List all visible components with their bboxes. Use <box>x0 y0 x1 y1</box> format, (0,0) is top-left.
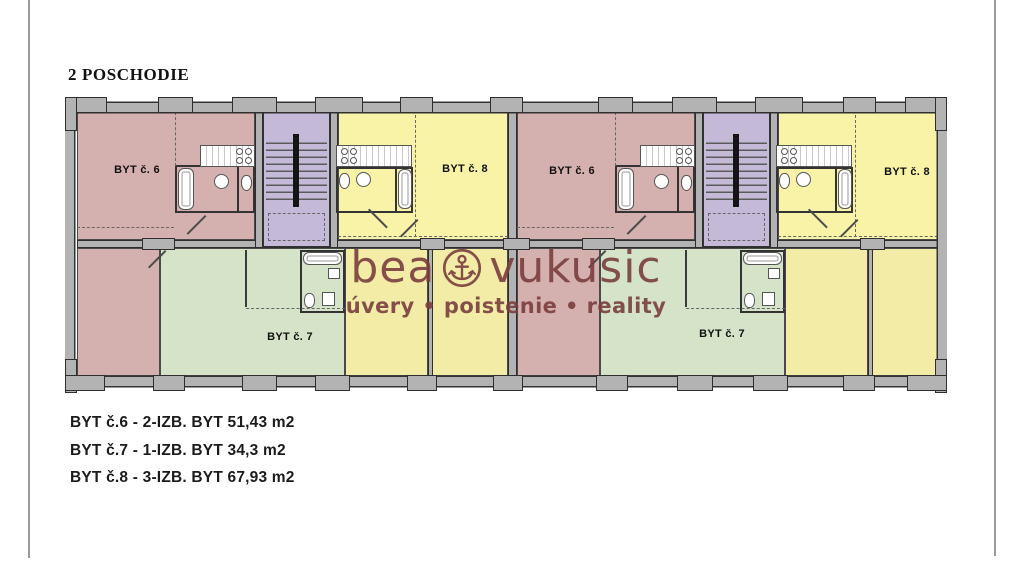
room-byt8-bedroom <box>785 248 868 376</box>
room-byt8-bedroom <box>345 248 428 376</box>
bathtub-icon <box>618 168 634 210</box>
bathtub-icon <box>398 169 412 209</box>
toilet-icon <box>339 173 350 189</box>
wall-pillar <box>755 97 803 113</box>
stove-burner-icon <box>781 157 788 164</box>
interior-wall <box>685 250 687 307</box>
sink-icon <box>356 172 371 187</box>
floor-plan: BYT č. 6BYT č. 6BYT č. 8BYT č. 8BYT č. 7… <box>65 97 947 393</box>
wall-pillar <box>843 97 876 113</box>
wall-pillar <box>493 375 523 391</box>
sink-icon <box>654 174 669 189</box>
wall-pillar <box>677 375 713 391</box>
stair-landing <box>708 213 765 241</box>
stair-core <box>733 134 739 207</box>
toilet-icon <box>304 293 315 308</box>
wall-pillar <box>598 97 633 113</box>
apartment-legend: BYT č.6 - 2-IZB. BYT 51,43 m2 BYT č.7 - … <box>70 409 295 492</box>
toilet-icon <box>779 173 790 189</box>
sink-icon <box>214 174 229 189</box>
dashed-partition <box>686 308 785 309</box>
kitchen-counter <box>336 145 412 167</box>
dashed-partition <box>77 227 174 228</box>
wall-pillar <box>232 97 277 113</box>
stove-burner-icon <box>341 148 348 155</box>
stove-burner-icon <box>781 148 788 155</box>
wall-corner <box>65 375 105 391</box>
wall-pillar <box>153 375 185 391</box>
wall-pillar <box>420 238 445 250</box>
wall-pillar <box>315 375 350 391</box>
room-label-byt8-right: BYT č. 8 <box>884 166 930 178</box>
kitchen-counter <box>776 145 852 167</box>
stove-burner-icon <box>236 148 243 155</box>
sink-icon <box>796 172 811 187</box>
wall-pillar <box>672 97 717 113</box>
wall-corner <box>65 97 77 131</box>
bathtub-icon <box>178 168 194 210</box>
room-label-byt6-right: BYT č. 6 <box>549 165 595 177</box>
wall-pillar <box>158 97 193 113</box>
wall-pillar <box>400 97 433 113</box>
wall-pillar <box>407 375 437 391</box>
wall-pillar <box>315 97 363 113</box>
page-edge-left <box>28 0 30 558</box>
washer-icon <box>762 292 775 306</box>
interior-wall <box>868 248 873 376</box>
document-page: 2 POSCHODIE BYT č. 6BYT č. 6BYT č. 8BYT … <box>0 0 1011 570</box>
legend-item-byt6: BYT č.6 - 2-IZB. BYT 51,43 m2 <box>70 409 295 437</box>
dashed-partition <box>246 308 345 309</box>
legend-item-byt8: BYT č.8 - 3-IZB. BYT 67,93 m2 <box>70 464 295 492</box>
interior-wall <box>245 250 247 307</box>
stove-burner-icon <box>676 148 683 155</box>
wall-pillar <box>843 375 875 391</box>
stair-landing <box>268 213 325 241</box>
wall-pillar <box>596 375 628 391</box>
stove-burner-icon <box>245 148 252 155</box>
stove-burner-icon <box>685 157 692 164</box>
page-edge-right <box>994 0 996 556</box>
interior-wall <box>255 103 263 248</box>
legend-item-byt7: BYT č.7 - 1-IZB. BYT 34,3 m2 <box>70 437 295 465</box>
wall-pillar <box>242 375 277 391</box>
sink-icon <box>328 268 340 279</box>
page-title: 2 POSCHODIE <box>68 66 189 83</box>
stove-burner-icon <box>245 157 252 164</box>
stove-burner-icon <box>676 157 683 164</box>
dashed-partition <box>338 236 508 237</box>
toilet-icon <box>681 175 692 191</box>
stove-burner-icon <box>350 157 357 164</box>
dashed-partition <box>615 112 616 166</box>
wall-corner <box>935 97 947 131</box>
interior-wall <box>428 248 433 376</box>
wall-pillar <box>490 97 523 113</box>
wall-corner <box>907 375 947 391</box>
bathtub-icon <box>743 252 782 265</box>
stove-burner-icon <box>790 157 797 164</box>
wall-pillar <box>503 238 530 250</box>
dashed-partition <box>778 236 947 237</box>
toilet-icon <box>744 293 755 308</box>
sink-icon <box>768 268 780 279</box>
room-label-byt7-left: BYT č. 7 <box>267 331 313 343</box>
stove-burner-icon <box>341 157 348 164</box>
room-label-byt8-left: BYT č. 8 <box>442 163 488 175</box>
bathtub-icon <box>303 252 342 265</box>
wall-pillar <box>582 238 615 250</box>
room-label-byt7-right: BYT č. 7 <box>699 328 745 340</box>
toilet-icon <box>241 175 252 191</box>
stove-burner-icon <box>350 148 357 155</box>
room-byt8-kitchen-room <box>432 248 508 376</box>
dashed-partition <box>175 112 176 166</box>
wall-pillar <box>860 238 885 250</box>
stove-burner-icon <box>236 157 243 164</box>
room-byt8-kitchen-room <box>872 248 947 376</box>
room-label-byt6-left: BYT č. 6 <box>114 164 160 176</box>
bathtub-icon <box>838 169 852 209</box>
interior-wall <box>695 103 703 248</box>
stove-burner-icon <box>790 148 797 155</box>
wall-pillar <box>753 375 788 391</box>
wall-pillar <box>142 238 175 250</box>
washer-icon <box>322 292 335 306</box>
stair-core <box>293 134 299 207</box>
stove-burner-icon <box>685 148 692 155</box>
dashed-partition <box>517 227 614 228</box>
